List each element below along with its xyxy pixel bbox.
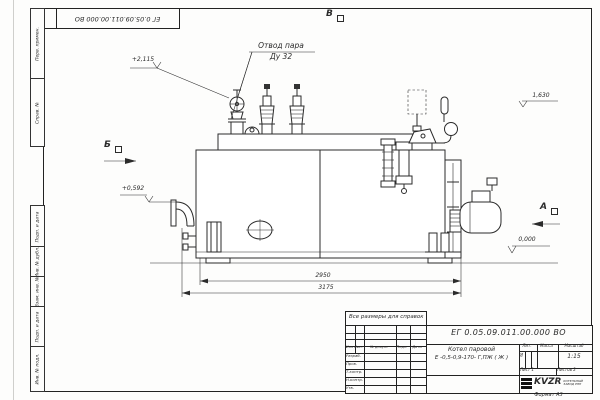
view-ref-mark	[551, 208, 558, 215]
view-label-a: А	[540, 203, 547, 212]
safety-valve-2	[288, 84, 306, 134]
tb-header-list: Лист	[354, 346, 363, 350]
steam-outlet-label: Отвод пара	[248, 42, 314, 50]
view-ref-mark	[115, 146, 122, 153]
tb-header-docnum: № докум.	[363, 346, 395, 350]
sheets-label: Листов	[557, 367, 572, 372]
elevation-zero: 0,000	[510, 237, 544, 243]
view-letter: В	[326, 9, 333, 19]
lit-value: И	[518, 354, 524, 359]
boiler-shell	[196, 134, 461, 263]
tb-row-nkontr: Н.контр.	[346, 378, 363, 382]
kvzr-logo-icon	[521, 378, 532, 389]
dim-3175: 3175	[303, 285, 349, 291]
front-support	[207, 222, 221, 252]
col-scale: Масштаб	[557, 344, 591, 348]
dim-2950: 2950	[300, 273, 346, 279]
sheet-cell: Лист 1	[520, 368, 555, 372]
col-lit: Лит.	[518, 344, 536, 348]
elevation-top: +2,115	[126, 57, 160, 63]
product-model: Е -0,5-0,9-170- Г,ПЖ ( Ж )	[427, 356, 516, 362]
sheets-value: 2	[573, 367, 576, 372]
tb-row-prov: Пров.	[346, 362, 357, 366]
safety-valve-1	[258, 84, 276, 134]
view-label-v: В	[326, 10, 333, 19]
steam-outlet-valve	[228, 90, 246, 134]
tb-row-utv: Утв.	[346, 386, 354, 390]
logo-subline-2: ЗАВОД РЭП	[563, 383, 583, 386]
drawing-sheet: ЕГ 0.05.09.011.00.000 ВО Перв. примен. С…	[0, 0, 600, 400]
format-label: Формат А3	[505, 393, 592, 398]
tb-row-tkontr: Т.контр.	[346, 370, 362, 374]
tb-header-izm: Изм	[345, 346, 354, 350]
col-mass: Масса	[536, 344, 557, 348]
reference-note-box: Все размеры для справок	[345, 311, 427, 326]
kvzr-logo-text: KVZR	[534, 378, 561, 387]
product-title: Котел паровой	[427, 347, 516, 353]
sheets-cell: Листов 2	[557, 368, 592, 372]
tb-header-data: Дата	[409, 346, 425, 350]
instruments	[408, 90, 458, 143]
burner-elbow	[171, 200, 196, 250]
view-letter: А	[540, 202, 547, 212]
view-label-b: Б	[104, 141, 111, 150]
steam-outlet-dn: Ду 32	[248, 53, 314, 61]
tb-header-podp: Подп.	[395, 346, 409, 350]
tb-row-razrab: Разраб.	[346, 354, 361, 358]
lifting-lug	[245, 127, 259, 134]
scale-value: 1:15	[557, 354, 591, 360]
elevation-right: 1,630	[524, 93, 558, 99]
manufacturer-logo: KVZR КОТЕЛЬНЫЙ ЗАВОД РЭП	[521, 376, 591, 390]
titleblock-designation: ЕГ 0.05.09.011.00.000 ВО	[427, 329, 590, 337]
elevation-front: +0,592	[116, 186, 150, 192]
view-letter: Б	[104, 140, 111, 150]
reference-note: Все размеры для справок	[349, 315, 424, 321]
view-ref-mark	[337, 15, 344, 22]
sheet-label: Лист	[520, 367, 530, 372]
sheet-value: 1	[531, 367, 534, 372]
